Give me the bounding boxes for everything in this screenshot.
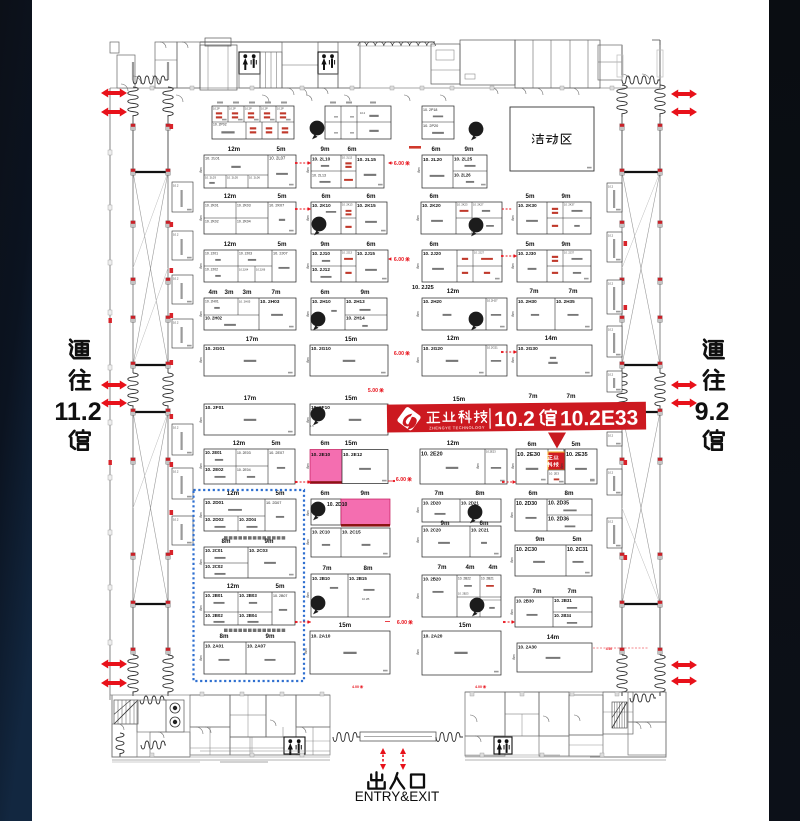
svg-text:9m: 9m bbox=[536, 536, 545, 543]
svg-text:6.00: 6.00 bbox=[397, 620, 407, 626]
svg-text:5m: 5m bbox=[573, 536, 582, 543]
svg-text:10.2: 10.2 bbox=[608, 373, 614, 377]
svg-text:9m: 9m bbox=[265, 538, 274, 545]
svg-text:10. 2L20: 10. 2L20 bbox=[423, 157, 442, 163]
svg-text:10. 2F01: 10. 2F01 bbox=[205, 405, 224, 411]
svg-text:8m: 8m bbox=[306, 311, 310, 316]
svg-text:5m: 5m bbox=[278, 241, 287, 248]
svg-text:8m: 8m bbox=[222, 538, 231, 545]
svg-text:10. 2D20: 10. 2D20 bbox=[423, 501, 441, 506]
svg-text:10. 2C30: 10. 2C30 bbox=[516, 547, 537, 553]
svg-text:10. 2J02: 10. 2J02 bbox=[205, 268, 218, 272]
svg-text:10.2P: 10.2P bbox=[277, 107, 284, 111]
svg-text:5m: 5m bbox=[526, 241, 535, 248]
svg-text:10.2: 10.2 bbox=[360, 111, 366, 115]
svg-text:10. 2D02: 10. 2D02 bbox=[205, 517, 224, 522]
svg-text:12m: 12m bbox=[447, 335, 460, 342]
svg-text:12m: 12m bbox=[224, 241, 237, 248]
svg-text:7m: 7m bbox=[435, 490, 444, 497]
svg-text:10. 2H14: 10. 2H14 bbox=[346, 316, 365, 321]
svg-text:6m: 6m bbox=[430, 241, 439, 248]
svg-text:7m: 7m bbox=[530, 288, 539, 295]
svg-text:10.2: 10.2 bbox=[608, 185, 614, 189]
svg-text:9m: 9m bbox=[361, 490, 370, 497]
svg-text:10. 2B23: 10. 2B23 bbox=[458, 592, 469, 596]
svg-text:10. 2J27: 10. 2J27 bbox=[474, 251, 485, 255]
svg-text:8m: 8m bbox=[199, 605, 203, 610]
svg-text:8m: 8m bbox=[476, 463, 480, 468]
svg-text:8m: 8m bbox=[511, 311, 515, 316]
svg-text:10. 2L26: 10. 2L26 bbox=[454, 173, 471, 178]
svg-text:10. 2K10: 10. 2K10 bbox=[312, 203, 331, 208]
svg-text:8m: 8m bbox=[416, 357, 420, 362]
svg-text:10. 2L13: 10. 2L13 bbox=[312, 174, 326, 178]
svg-text:8m: 8m bbox=[364, 565, 373, 572]
svg-text:10. 2P18: 10. 2P18 bbox=[423, 108, 437, 112]
svg-text:10. 2H02: 10. 2H02 bbox=[205, 316, 223, 321]
svg-text:10.2J04: 10.2J04 bbox=[239, 268, 249, 272]
svg-text:7m: 7m bbox=[533, 588, 542, 595]
svg-text:12m: 12m bbox=[233, 440, 246, 447]
svg-text:5m: 5m bbox=[526, 193, 535, 200]
svg-text:5m: 5m bbox=[278, 193, 287, 200]
svg-text:10. 2G30: 10. 2G30 bbox=[518, 346, 538, 352]
svg-text:8m: 8m bbox=[511, 463, 515, 468]
svg-text:10. 2C01: 10. 2C01 bbox=[205, 548, 223, 553]
svg-text:10. 2A07: 10. 2A07 bbox=[247, 644, 266, 649]
svg-text:10. 2J01: 10. 2J01 bbox=[205, 252, 218, 256]
svg-text:10.2: 10.2 bbox=[173, 184, 179, 188]
svg-text:8m: 8m bbox=[416, 649, 420, 654]
svg-text:10. 2C20: 10. 2C20 bbox=[423, 528, 441, 533]
svg-text:8m: 8m bbox=[199, 417, 203, 422]
svg-text:8m: 8m bbox=[199, 559, 203, 564]
svg-text:10. 2J13: 10. 2J13 bbox=[342, 251, 353, 255]
svg-text:10. 2E07: 10. 2E07 bbox=[269, 451, 284, 455]
svg-text:7m: 7m bbox=[567, 393, 576, 400]
svg-text:10. 2E03: 10. 2E03 bbox=[237, 451, 251, 455]
svg-text:10.2: 10.2 bbox=[173, 277, 179, 281]
svg-text:4.00: 4.00 bbox=[352, 685, 359, 689]
svg-text:10. 2B21: 10. 2B21 bbox=[481, 577, 494, 581]
svg-text:10. 2J15: 10. 2J15 bbox=[357, 251, 375, 256]
svg-text:8m: 8m bbox=[560, 463, 564, 468]
svg-text:10.2J06: 10.2J06 bbox=[256, 268, 266, 272]
svg-text:8m: 8m bbox=[220, 633, 229, 640]
svg-text:10.2P: 10.2P bbox=[229, 107, 236, 111]
svg-text:8m: 8m bbox=[306, 215, 310, 220]
svg-text:10. 2C02: 10. 2C02 bbox=[205, 564, 223, 569]
svg-text:10. 2K04: 10. 2K04 bbox=[237, 220, 251, 224]
svg-text:3m: 3m bbox=[243, 289, 252, 296]
svg-text:4m: 4m bbox=[209, 289, 218, 296]
svg-text:9m: 9m bbox=[266, 633, 275, 640]
svg-text:6m: 6m bbox=[432, 146, 441, 153]
svg-text:10.2B: 10.2B bbox=[362, 597, 369, 601]
svg-text:7m: 7m bbox=[438, 564, 447, 571]
svg-text:10. 2B01: 10. 2B01 bbox=[205, 593, 223, 598]
svg-text:5m: 5m bbox=[272, 440, 281, 447]
svg-text:10. 2E20: 10. 2E20 bbox=[421, 452, 443, 458]
svg-text:10.2: 10.2 bbox=[608, 471, 614, 475]
svg-text:8m: 8m bbox=[510, 609, 514, 614]
svg-text:8m: 8m bbox=[416, 507, 420, 512]
svg-text:10. 2A01: 10. 2A01 bbox=[205, 644, 224, 649]
svg-text:10. 2C15: 10. 2C15 bbox=[342, 530, 361, 535]
svg-text:8m: 8m bbox=[199, 655, 203, 660]
svg-text:8m: 8m bbox=[199, 311, 203, 316]
svg-text:8m: 8m bbox=[199, 512, 203, 517]
svg-text:10.2P: 10.2P bbox=[261, 107, 268, 111]
svg-text:15m: 15m bbox=[453, 396, 466, 403]
svg-text:7m: 7m bbox=[529, 393, 538, 400]
svg-text:10. 2E04: 10. 2E04 bbox=[237, 468, 251, 472]
svg-text:5m: 5m bbox=[572, 441, 581, 448]
svg-text:9m: 9m bbox=[321, 241, 330, 248]
svg-text:10. 2B07: 10. 2B07 bbox=[273, 594, 287, 598]
svg-text:10.2G21: 10.2G21 bbox=[487, 346, 498, 350]
svg-text:10. 2J20: 10. 2J20 bbox=[423, 251, 441, 256]
svg-text:10. 2H05: 10. 2H05 bbox=[239, 300, 251, 304]
svg-text:10. 2K20: 10. 2K20 bbox=[422, 203, 441, 208]
svg-text:12m: 12m bbox=[227, 583, 240, 590]
svg-text:4m: 4m bbox=[489, 564, 498, 571]
svg-text:8m: 8m bbox=[416, 263, 420, 268]
svg-text:8m: 8m bbox=[511, 263, 515, 268]
svg-text:7m: 7m bbox=[272, 289, 281, 296]
svg-text:5.00: 5.00 bbox=[368, 388, 378, 394]
svg-text:6m: 6m bbox=[348, 146, 357, 153]
svg-text:10. 2L12: 10. 2L12 bbox=[342, 156, 353, 160]
svg-text:8m: 8m bbox=[199, 215, 203, 220]
svg-text:ZHENGYE TECHNOLOGY: ZHENGYE TECHNOLOGY bbox=[429, 425, 485, 431]
svg-text:10. 2D10: 10. 2D10 bbox=[327, 502, 348, 508]
svg-text:10. 2K01: 10. 2K01 bbox=[205, 204, 219, 208]
svg-text:8m: 8m bbox=[511, 215, 515, 220]
svg-text:6.00: 6.00 bbox=[394, 161, 404, 167]
svg-text:10.2: 10.2 bbox=[608, 520, 614, 524]
svg-text:8m: 8m bbox=[565, 490, 574, 497]
svg-text:6m: 6m bbox=[367, 241, 376, 248]
svg-text:10. 2K23: 10. 2K23 bbox=[457, 203, 468, 207]
svg-text:9m: 9m bbox=[321, 146, 330, 153]
svg-text:10. 2E35: 10. 2E35 bbox=[566, 452, 588, 458]
svg-text:8m: 8m bbox=[306, 263, 310, 268]
svg-text:8m: 8m bbox=[306, 167, 310, 172]
svg-text:10. 2K27: 10. 2K27 bbox=[473, 203, 484, 207]
svg-text:10.2: 10.2 bbox=[608, 328, 614, 332]
svg-text:10.2E23: 10.2E23 bbox=[486, 450, 496, 454]
svg-text:8m: 8m bbox=[306, 592, 310, 597]
svg-text:10. 2L05: 10. 2L05 bbox=[227, 176, 238, 180]
svg-text:8m: 8m bbox=[510, 512, 514, 517]
svg-text:10. 2J10: 10. 2J10 bbox=[312, 251, 330, 256]
svg-text:10. 2K02: 10. 2K02 bbox=[205, 220, 219, 224]
svg-text:8m: 8m bbox=[199, 167, 203, 172]
svg-text:9.2: 9.2 bbox=[695, 398, 730, 426]
svg-text:10.2: 10.2 bbox=[608, 234, 614, 238]
svg-text:4.00: 4.00 bbox=[475, 685, 482, 689]
svg-text:10. 2L06: 10. 2L06 bbox=[249, 176, 260, 180]
svg-text:10. 2E30: 10. 2E30 bbox=[517, 452, 540, 458]
svg-text:8m: 8m bbox=[199, 263, 203, 268]
svg-text:8m: 8m bbox=[416, 215, 420, 220]
svg-text:10. 2H10: 10. 2H10 bbox=[312, 299, 331, 304]
svg-text:12m: 12m bbox=[447, 288, 460, 295]
svg-text:8m: 8m bbox=[476, 490, 485, 497]
svg-text:10. 2B34: 10. 2B34 bbox=[554, 613, 572, 618]
svg-text:7m: 7m bbox=[569, 288, 578, 295]
svg-text:10. 2E3: 10. 2E3 bbox=[549, 472, 559, 476]
svg-text:10. 2J07: 10. 2J07 bbox=[273, 252, 288, 256]
svg-text:10. 2D01: 10. 2D01 bbox=[205, 500, 224, 505]
svg-text:10. 2A20: 10. 2A20 bbox=[423, 634, 443, 640]
svg-text:10. 2E02: 10. 2E02 bbox=[205, 467, 224, 472]
svg-text:10.2E33: 10.2E33 bbox=[560, 407, 639, 431]
svg-text:10. 2C21: 10. 2C21 bbox=[471, 528, 489, 533]
svg-text:8m: 8m bbox=[306, 510, 310, 515]
svg-text:5m: 5m bbox=[276, 583, 285, 590]
svg-text:10. 2D21: 10. 2D21 bbox=[461, 501, 479, 506]
svg-text:14m: 14m bbox=[547, 634, 560, 641]
svg-text:8m: 8m bbox=[416, 593, 420, 598]
svg-text:10.2: 10.2 bbox=[608, 434, 614, 438]
svg-text:4m: 4m bbox=[466, 564, 475, 571]
svg-text:10.2: 10.2 bbox=[173, 426, 179, 430]
svg-text:10. 2H30: 10. 2H30 bbox=[518, 299, 537, 304]
svg-text:15m: 15m bbox=[459, 622, 472, 629]
svg-text:10.2P: 10.2P bbox=[213, 107, 220, 111]
svg-text:10.2: 10.2 bbox=[608, 282, 614, 286]
svg-text:15m: 15m bbox=[345, 395, 358, 402]
svg-text:10. 2G20: 10. 2G20 bbox=[423, 346, 443, 352]
svg-text:10. 2J03: 10. 2J03 bbox=[239, 252, 252, 256]
svg-text:15m: 15m bbox=[345, 440, 358, 447]
svg-text:10. 2J12: 10. 2J12 bbox=[312, 267, 330, 272]
svg-text:9m: 9m bbox=[465, 146, 474, 153]
svg-text:10. 2H20: 10. 2H20 bbox=[423, 299, 442, 304]
svg-text:10. 2K03: 10. 2K03 bbox=[237, 204, 251, 208]
svg-text:10. 2E12: 10. 2E12 bbox=[343, 452, 363, 458]
svg-text:10. 2K13: 10. 2K13 bbox=[342, 203, 353, 207]
svg-text:10. 2D36: 10. 2D36 bbox=[548, 517, 569, 523]
svg-text:10. 2G01: 10. 2G01 bbox=[205, 346, 225, 352]
svg-text:10. 2B03: 10. 2B03 bbox=[239, 593, 257, 598]
svg-text:6.00: 6.00 bbox=[394, 257, 404, 263]
svg-text:10. 2H13: 10. 2H13 bbox=[346, 299, 365, 304]
svg-text:10.2: 10.2 bbox=[173, 233, 179, 237]
svg-text:10. 2B04: 10. 2B04 bbox=[239, 613, 257, 618]
svg-text:7m: 7m bbox=[323, 565, 332, 572]
svg-text:11.2: 11.2 bbox=[54, 398, 101, 426]
svg-text:8m: 8m bbox=[304, 648, 308, 653]
svg-text:6m: 6m bbox=[529, 490, 538, 497]
svg-text:10. 2B30: 10. 2B30 bbox=[516, 599, 534, 604]
svg-text:17m: 17m bbox=[246, 336, 259, 343]
svg-text:10. 2L01: 10. 2L01 bbox=[205, 157, 220, 161]
svg-text:3m: 3m bbox=[225, 289, 234, 296]
svg-text:10. 2D35: 10. 2D35 bbox=[548, 501, 569, 507]
svg-text:10. 2H03: 10. 2H03 bbox=[260, 299, 280, 305]
svg-text:10. 2E01: 10. 2E01 bbox=[205, 450, 222, 455]
svg-text:6m: 6m bbox=[321, 289, 330, 296]
svg-text:10. 2C03: 10. 2C03 bbox=[249, 548, 268, 553]
svg-text:10. 2L15: 10. 2L15 bbox=[357, 157, 376, 163]
svg-text:12m: 12m bbox=[228, 146, 241, 153]
svg-text:10. 2J25: 10. 2J25 bbox=[412, 285, 434, 291]
svg-text:10. 2P02: 10. 2P02 bbox=[213, 123, 227, 127]
svg-text:10. 2L03: 10. 2L03 bbox=[205, 176, 216, 180]
svg-text:ENTRY&EXIT: ENTRY&EXIT bbox=[355, 789, 440, 804]
svg-text:6.00: 6.00 bbox=[396, 477, 406, 483]
svg-text:10. 2L07: 10. 2L07 bbox=[269, 156, 286, 161]
svg-text:8m: 8m bbox=[510, 557, 514, 562]
svg-text:10. 2D30: 10. 2D30 bbox=[516, 501, 537, 507]
svg-text:10. 2A30: 10. 2A30 bbox=[518, 645, 537, 650]
svg-text:8m: 8m bbox=[306, 539, 310, 544]
svg-text:6m: 6m bbox=[430, 193, 439, 200]
svg-text:6m: 6m bbox=[321, 440, 330, 447]
svg-text:10.2P: 10.2P bbox=[245, 107, 252, 111]
svg-text:10. 2L10: 10. 2L10 bbox=[312, 157, 331, 162]
svg-text:10. 2C10: 10. 2C10 bbox=[312, 530, 330, 535]
svg-text:10. 2P20: 10. 2P20 bbox=[423, 124, 438, 128]
svg-text:10. 2B10: 10. 2B10 bbox=[312, 576, 330, 581]
svg-text:8m: 8m bbox=[416, 311, 420, 316]
svg-text:10. 2D07: 10. 2D07 bbox=[266, 501, 281, 505]
svg-text:10.2: 10.2 bbox=[173, 321, 179, 325]
svg-text:14m: 14m bbox=[545, 335, 558, 342]
svg-text:10. 2B22: 10. 2B22 bbox=[458, 577, 471, 581]
svg-text:10.2: 10.2 bbox=[494, 408, 535, 431]
svg-text:10. 2H01: 10. 2H01 bbox=[205, 300, 219, 304]
svg-text:10. 2C31: 10. 2C31 bbox=[567, 547, 588, 553]
svg-text:10.2: 10.2 bbox=[173, 470, 179, 474]
svg-text:8m: 8m bbox=[511, 357, 515, 362]
svg-text:10. 2J37: 10. 2J37 bbox=[564, 251, 575, 255]
svg-text:8m: 8m bbox=[199, 357, 203, 362]
svg-text:10. 2G10: 10. 2G10 bbox=[311, 346, 331, 352]
svg-text:9m: 9m bbox=[562, 241, 571, 248]
svg-text:9m: 9m bbox=[361, 289, 370, 296]
svg-text:17m: 17m bbox=[244, 395, 257, 402]
svg-text:10. 2D04: 10. 2D04 bbox=[239, 517, 257, 522]
svg-text:8m: 8m bbox=[306, 417, 310, 422]
svg-text:5m: 5m bbox=[277, 146, 286, 153]
svg-text:15m: 15m bbox=[345, 336, 358, 343]
svg-text:10. 2J30: 10. 2J30 bbox=[518, 251, 536, 256]
svg-text:8m: 8m bbox=[512, 654, 516, 659]
svg-text:10.2: 10.2 bbox=[173, 518, 179, 522]
svg-text:6m: 6m bbox=[321, 490, 330, 497]
svg-text:8m: 8m bbox=[417, 167, 421, 172]
svg-text:12m: 12m bbox=[447, 440, 460, 447]
svg-text:10. 2B02: 10. 2B02 bbox=[205, 613, 223, 618]
svg-text:10. 2H35: 10. 2H35 bbox=[556, 299, 575, 304]
svg-text:10. 2K15: 10. 2K15 bbox=[357, 203, 376, 208]
svg-text:10. 2A10: 10. 2A10 bbox=[311, 634, 331, 640]
svg-text:6m: 6m bbox=[322, 193, 331, 200]
svg-text:6m: 6m bbox=[528, 441, 537, 448]
svg-text:4.50: 4.50 bbox=[606, 647, 612, 651]
svg-text:10. 2E10: 10. 2E10 bbox=[311, 452, 331, 458]
svg-text:10. 2B20: 10. 2B20 bbox=[423, 577, 441, 582]
svg-text:7m: 7m bbox=[568, 588, 577, 595]
svg-text:10. 2L25: 10. 2L25 bbox=[454, 157, 473, 162]
svg-text:15m: 15m bbox=[339, 622, 352, 629]
svg-text:6m: 6m bbox=[367, 193, 376, 200]
svg-text:8m: 8m bbox=[199, 463, 203, 468]
svg-text:12m: 12m bbox=[224, 193, 237, 200]
svg-text:8m: 8m bbox=[416, 537, 420, 542]
svg-text:10. 2B15: 10. 2B15 bbox=[349, 576, 367, 581]
svg-text:10. 2K37: 10. 2K37 bbox=[564, 203, 575, 207]
svg-text:10. 2B31: 10. 2B31 bbox=[554, 598, 572, 603]
svg-text:8m: 8m bbox=[306, 463, 310, 468]
svg-text:10. 2K07: 10. 2K07 bbox=[269, 204, 284, 208]
svg-text:1.5: 1.5 bbox=[310, 424, 314, 428]
svg-text:8m: 8m bbox=[306, 357, 310, 362]
svg-text:10.2H27: 10.2H27 bbox=[487, 299, 498, 303]
svg-text:9m: 9m bbox=[562, 193, 571, 200]
svg-text:10. 2K30: 10. 2K30 bbox=[518, 203, 537, 208]
svg-text:6.00: 6.00 bbox=[394, 351, 404, 357]
